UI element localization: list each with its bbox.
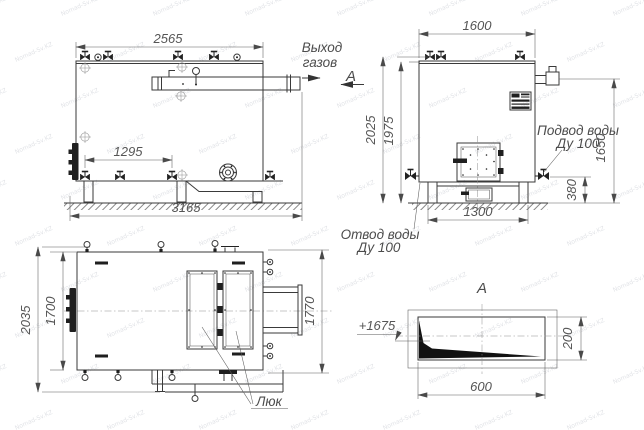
- centerline-target: [79, 131, 91, 143]
- watermark-text: Nomad-Sv.KZ: [0, 87, 8, 110]
- gas-outlet-annotation: Выход газов: [302, 40, 343, 78]
- water-supply-valve: [535, 170, 549, 181]
- dim-200: 200: [560, 327, 575, 350]
- watermark-text: Nomad-Sv.KZ: [60, 87, 100, 110]
- safety-valve: [81, 52, 90, 61]
- dim-2025: 2025: [363, 115, 378, 146]
- watermark-text: Nomad-Sv.KZ: [612, 87, 644, 110]
- water-return-label-2: Ду 100: [356, 240, 401, 255]
- gas-outlet-label-2: газов: [303, 55, 337, 70]
- dim-body-height: 1975: [381, 62, 420, 203]
- watermark-text: Nomad-Sv.KZ: [290, 409, 330, 430]
- lifting-pad: [95, 262, 108, 265]
- watermark-text: Nomad-Sv.KZ: [290, 133, 330, 156]
- safety-valve: [426, 52, 435, 61]
- watermark-text: Nomad-Sv.KZ: [198, 133, 238, 156]
- watermark-text: Nomad-Sv.KZ: [14, 133, 54, 156]
- side-nozzles-plan: [263, 259, 273, 359]
- hatch-right: [223, 271, 253, 349]
- watermark-text: Nomad-Sv.KZ: [336, 87, 376, 110]
- safety-valve: [174, 52, 183, 61]
- watermark-text: Nomad-Sv.KZ: [106, 41, 146, 64]
- watermark-text: Nomad-Sv.KZ: [14, 225, 54, 248]
- watermark-text: Nomad-Sv.KZ: [14, 41, 54, 64]
- lifting-pad: [232, 353, 245, 356]
- door-hinge: [498, 150, 504, 156]
- watermark-text: Nomad-Sv.KZ: [0, 271, 8, 294]
- dim-overall-length: 3165: [70, 92, 302, 221]
- chimney-stub: [535, 67, 559, 86]
- watermark-text: Nomad-Sv.KZ: [428, 271, 468, 294]
- ash-deposit-profile: [419, 321, 541, 359]
- dim-1295: 1295: [114, 144, 144, 159]
- watermark-text: Nomad-Sv.KZ: [382, 409, 422, 430]
- safety-valve: [516, 52, 525, 61]
- dim-2035: 2035: [18, 305, 33, 336]
- watermark-text: Nomad-Sv.KZ: [14, 409, 54, 430]
- dim-1600: 1600: [463, 18, 493, 33]
- manufacturer-nameplate: [510, 92, 531, 110]
- lifting-pad: [95, 355, 108, 358]
- watermark-text: Nomad-Sv.KZ: [612, 0, 644, 18]
- watermark-text: Nomad-Sv.KZ: [566, 41, 606, 64]
- gas-duct-plan: [263, 285, 302, 335]
- drain-valve: [266, 172, 275, 181]
- watermark-text: Nomad-Sv.KZ: [60, 179, 100, 202]
- watermark-text: Nomad-Sv.KZ: [474, 41, 514, 64]
- watermark-text: Nomad-Sv.KZ: [198, 41, 238, 64]
- section-title: А: [476, 280, 487, 297]
- watermark-text: Nomad-Sv.KZ: [612, 363, 644, 386]
- watermark-text: Nomad-Sv.KZ: [428, 0, 468, 18]
- section-view-a: А +1675 200 600: [357, 280, 587, 399]
- dim-1700: 1700: [43, 296, 58, 326]
- water-return-valve: [405, 170, 419, 181]
- duct-outer-casing: [408, 310, 557, 368]
- watermark-text: Nomad-Sv.KZ: [244, 0, 284, 18]
- watermark-text: Nomad-Sv.KZ: [520, 0, 560, 18]
- furnace-door: [453, 143, 504, 181]
- watermark-text: Nomad-Sv.KZ: [566, 409, 606, 430]
- watermark-text: Nomad-Sv.KZ: [60, 271, 100, 294]
- watermark-text: Nomad-Sv.KZ: [336, 271, 376, 294]
- dim-nozzle-spacing: 1295: [85, 144, 172, 168]
- water-supply-label-2: Ду 100: [555, 136, 600, 151]
- dim-2565: 2565: [153, 31, 184, 46]
- watermark-text: Nomad-Sv.KZ: [106, 409, 146, 430]
- watermark-text: Nomad-Sv.KZ: [566, 225, 606, 248]
- watermark-text: Nomad-Sv.KZ: [382, 41, 422, 64]
- drain-valve: [168, 172, 177, 181]
- lifting-pad: [232, 262, 245, 265]
- watermark-text: Nomad-Sv.KZ: [0, 179, 8, 202]
- door-handle: [453, 159, 467, 164]
- watermark-text: Nomad-Sv.KZ: [152, 0, 192, 18]
- watermark-text: Nomad-Sv.KZ: [428, 87, 468, 110]
- watermark-text: Nomad-Sv.KZ: [60, 363, 100, 386]
- boiler-body-side: [76, 61, 263, 181]
- watermark-text: Nomad-Sv.KZ: [106, 225, 146, 248]
- watermark-text: Nomad-Sv.KZ: [336, 179, 376, 202]
- watermark-text: Nomad-Sv.KZ: [0, 0, 8, 18]
- watermark-text: Nomad-Sv.KZ: [520, 87, 560, 110]
- watermark-text: Nomad-Sv.KZ: [474, 225, 514, 248]
- hatch-hinge: [218, 329, 223, 336]
- watermark-text: Nomad-Sv.KZ: [244, 363, 284, 386]
- drain-handle: [192, 396, 198, 402]
- ash-door: [461, 188, 492, 201]
- safety-valve: [437, 52, 446, 61]
- drain-valve: [116, 172, 125, 181]
- centerline-target: [176, 61, 188, 73]
- gas-outlet-label-1: Выход: [302, 40, 343, 55]
- hatch-hinge: [218, 306, 223, 313]
- damper-handle: [193, 68, 200, 75]
- rear-hinge-strip: [69, 143, 79, 180]
- dim-3165: 3165: [172, 200, 202, 215]
- watermark-text: Nomad-Sv.KZ: [474, 317, 514, 340]
- boiler-body-front: [419, 61, 535, 182]
- watermark-text: Nomad-Sv.KZ: [152, 271, 192, 294]
- dim-1300: 1300: [464, 204, 494, 219]
- bottom-flange-port: [220, 164, 237, 181]
- dim-600: 600: [470, 379, 492, 394]
- watermark-text: Nomad-Sv.KZ: [198, 409, 238, 430]
- watermark-text: Nomad-Sv.KZ: [106, 317, 146, 340]
- door-hinge: [498, 168, 504, 174]
- watermark-text: Nomad-Sv.KZ: [336, 363, 376, 386]
- watermark-text: Nomad-Sv.KZ: [474, 409, 514, 430]
- section-view-marker: А: [341, 68, 364, 85]
- rear-hinge-strip-plan: [66, 288, 76, 332]
- hatch-label: Люк: [255, 394, 282, 409]
- watermark-text: Nomad-Sv.KZ: [612, 179, 644, 202]
- ash-door-handle: [461, 192, 469, 196]
- drawing-canvas: Nomad-Sv.KZNomad-Sv.KZNomad-Sv.KZNomad-S…: [0, 0, 644, 430]
- watermark-text: Nomad-Sv.KZ: [198, 317, 238, 340]
- watermark-text: Nomad-Sv.KZ: [60, 0, 100, 18]
- watermark-text: Nomad-Sv.KZ: [0, 363, 8, 386]
- watermark-text: Nomad-Sv.KZ: [612, 271, 644, 294]
- watermark-text: Nomad-Sv.KZ: [520, 363, 560, 386]
- drawing-sheet: Nomad-Sv.KZNomad-Sv.KZNomad-Sv.KZNomad-S…: [0, 0, 644, 430]
- watermark-text: Nomad-Sv.KZ: [428, 363, 468, 386]
- dim-section-height: 200: [547, 317, 587, 360]
- watermark-text: Nomad-Sv.KZ: [474, 133, 514, 156]
- dim-1770: 1770: [302, 296, 317, 326]
- watermark-text: Nomad-Sv.KZ: [290, 225, 330, 248]
- level-mark: +1675: [359, 318, 396, 333]
- dim-380: 380: [564, 178, 579, 200]
- dim-1975: 1975: [381, 116, 396, 146]
- section-marker-letter: А: [345, 68, 356, 85]
- watermark-text: Nomad-Sv.KZ: [244, 179, 284, 202]
- drain-valve: [81, 172, 90, 181]
- hatch-hinge: [218, 283, 223, 290]
- watermark-text: Nomad-Sv.KZ: [520, 271, 560, 294]
- watermark-text: Nomad-Sv.KZ: [336, 0, 376, 18]
